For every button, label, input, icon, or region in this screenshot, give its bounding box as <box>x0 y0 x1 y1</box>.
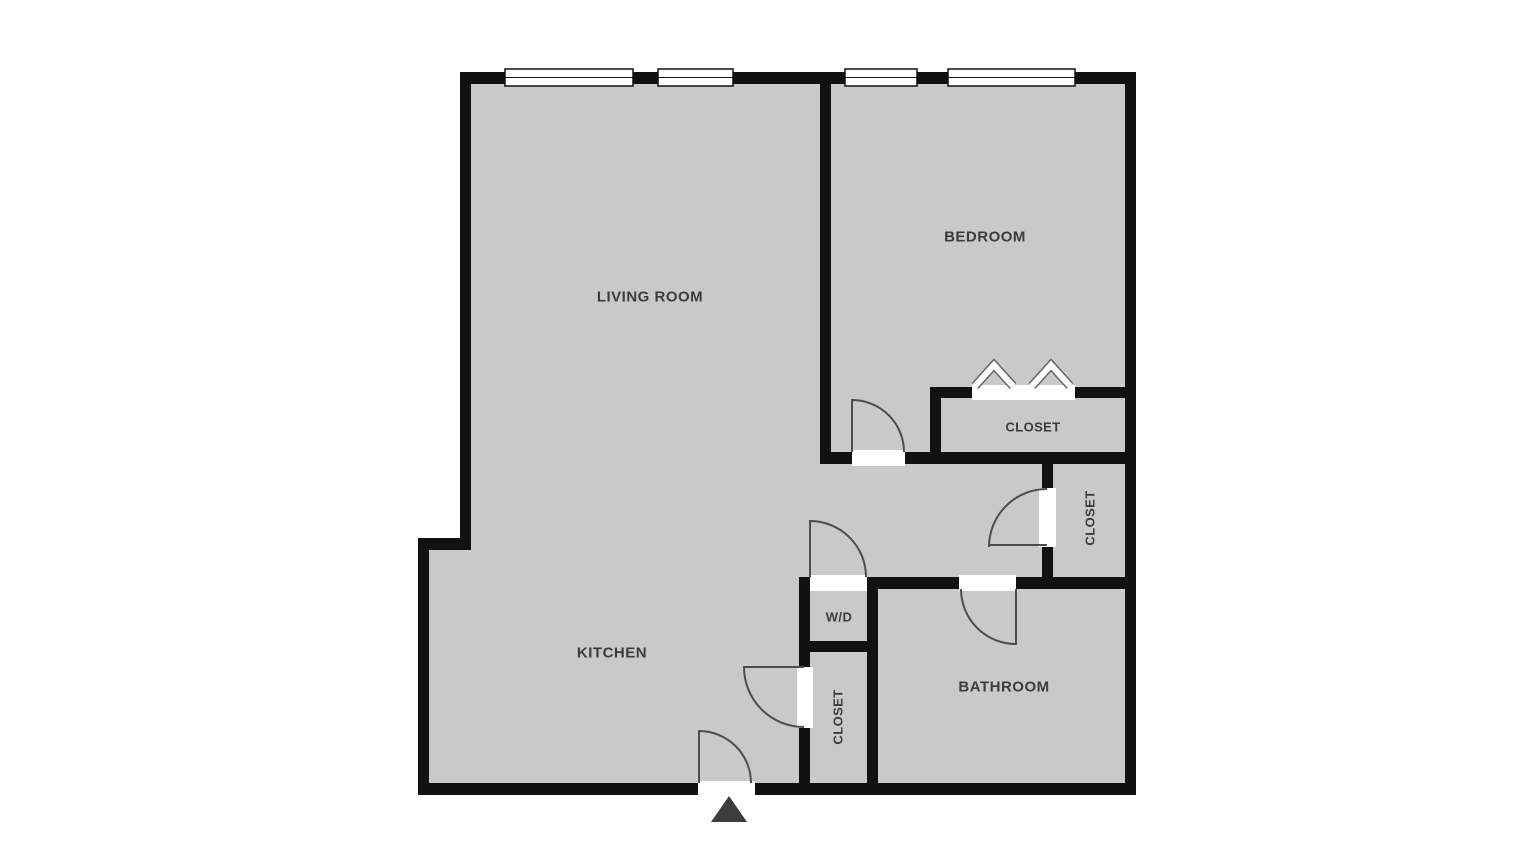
floorplan-drawing <box>0 0 1520 855</box>
bathroom-door-opening <box>959 575 1016 591</box>
room-label-bedroom: BEDROOM <box>944 229 1026 246</box>
wall-wd-column-right <box>867 577 878 795</box>
wall-left-lower <box>418 538 429 795</box>
wd-door-opening <box>810 575 867 591</box>
wall-wd-bottom <box>799 641 878 652</box>
hall-closet-door-opening <box>1039 488 1056 547</box>
wall-right <box>1125 72 1136 795</box>
floorplan-canvas: LIVING ROOM BEDROOM CLOSET CLOSET W/D KI… <box>0 0 1520 855</box>
window <box>948 69 1075 86</box>
window <box>658 69 733 86</box>
wall-living-bedroom-divider <box>820 72 831 464</box>
bedroom-door-opening <box>852 450 905 466</box>
kitchen-closet-door-opening <box>797 667 813 728</box>
room-label-bathroom: BATHROOM <box>958 679 1049 696</box>
room-label-wd: W/D <box>826 610 852 625</box>
room-label-hall-closet: CLOSET <box>1083 490 1098 545</box>
wall-bedroom-closet-left <box>930 387 941 464</box>
bedroom-closet-opening <box>972 385 1075 400</box>
wall-bottom <box>418 783 1136 795</box>
room-label-kitchen: KITCHEN <box>577 645 647 662</box>
window <box>845 69 917 86</box>
wall-left-upper <box>460 72 471 550</box>
entrance-opening <box>698 781 755 797</box>
room-label-kitchen-closet: CLOSET <box>831 689 846 744</box>
room-label-living-room: LIVING ROOM <box>597 289 703 306</box>
room-label-bedroom-closet: CLOSET <box>1005 420 1060 435</box>
window <box>505 69 633 86</box>
entrance-triangle-icon <box>711 796 747 822</box>
